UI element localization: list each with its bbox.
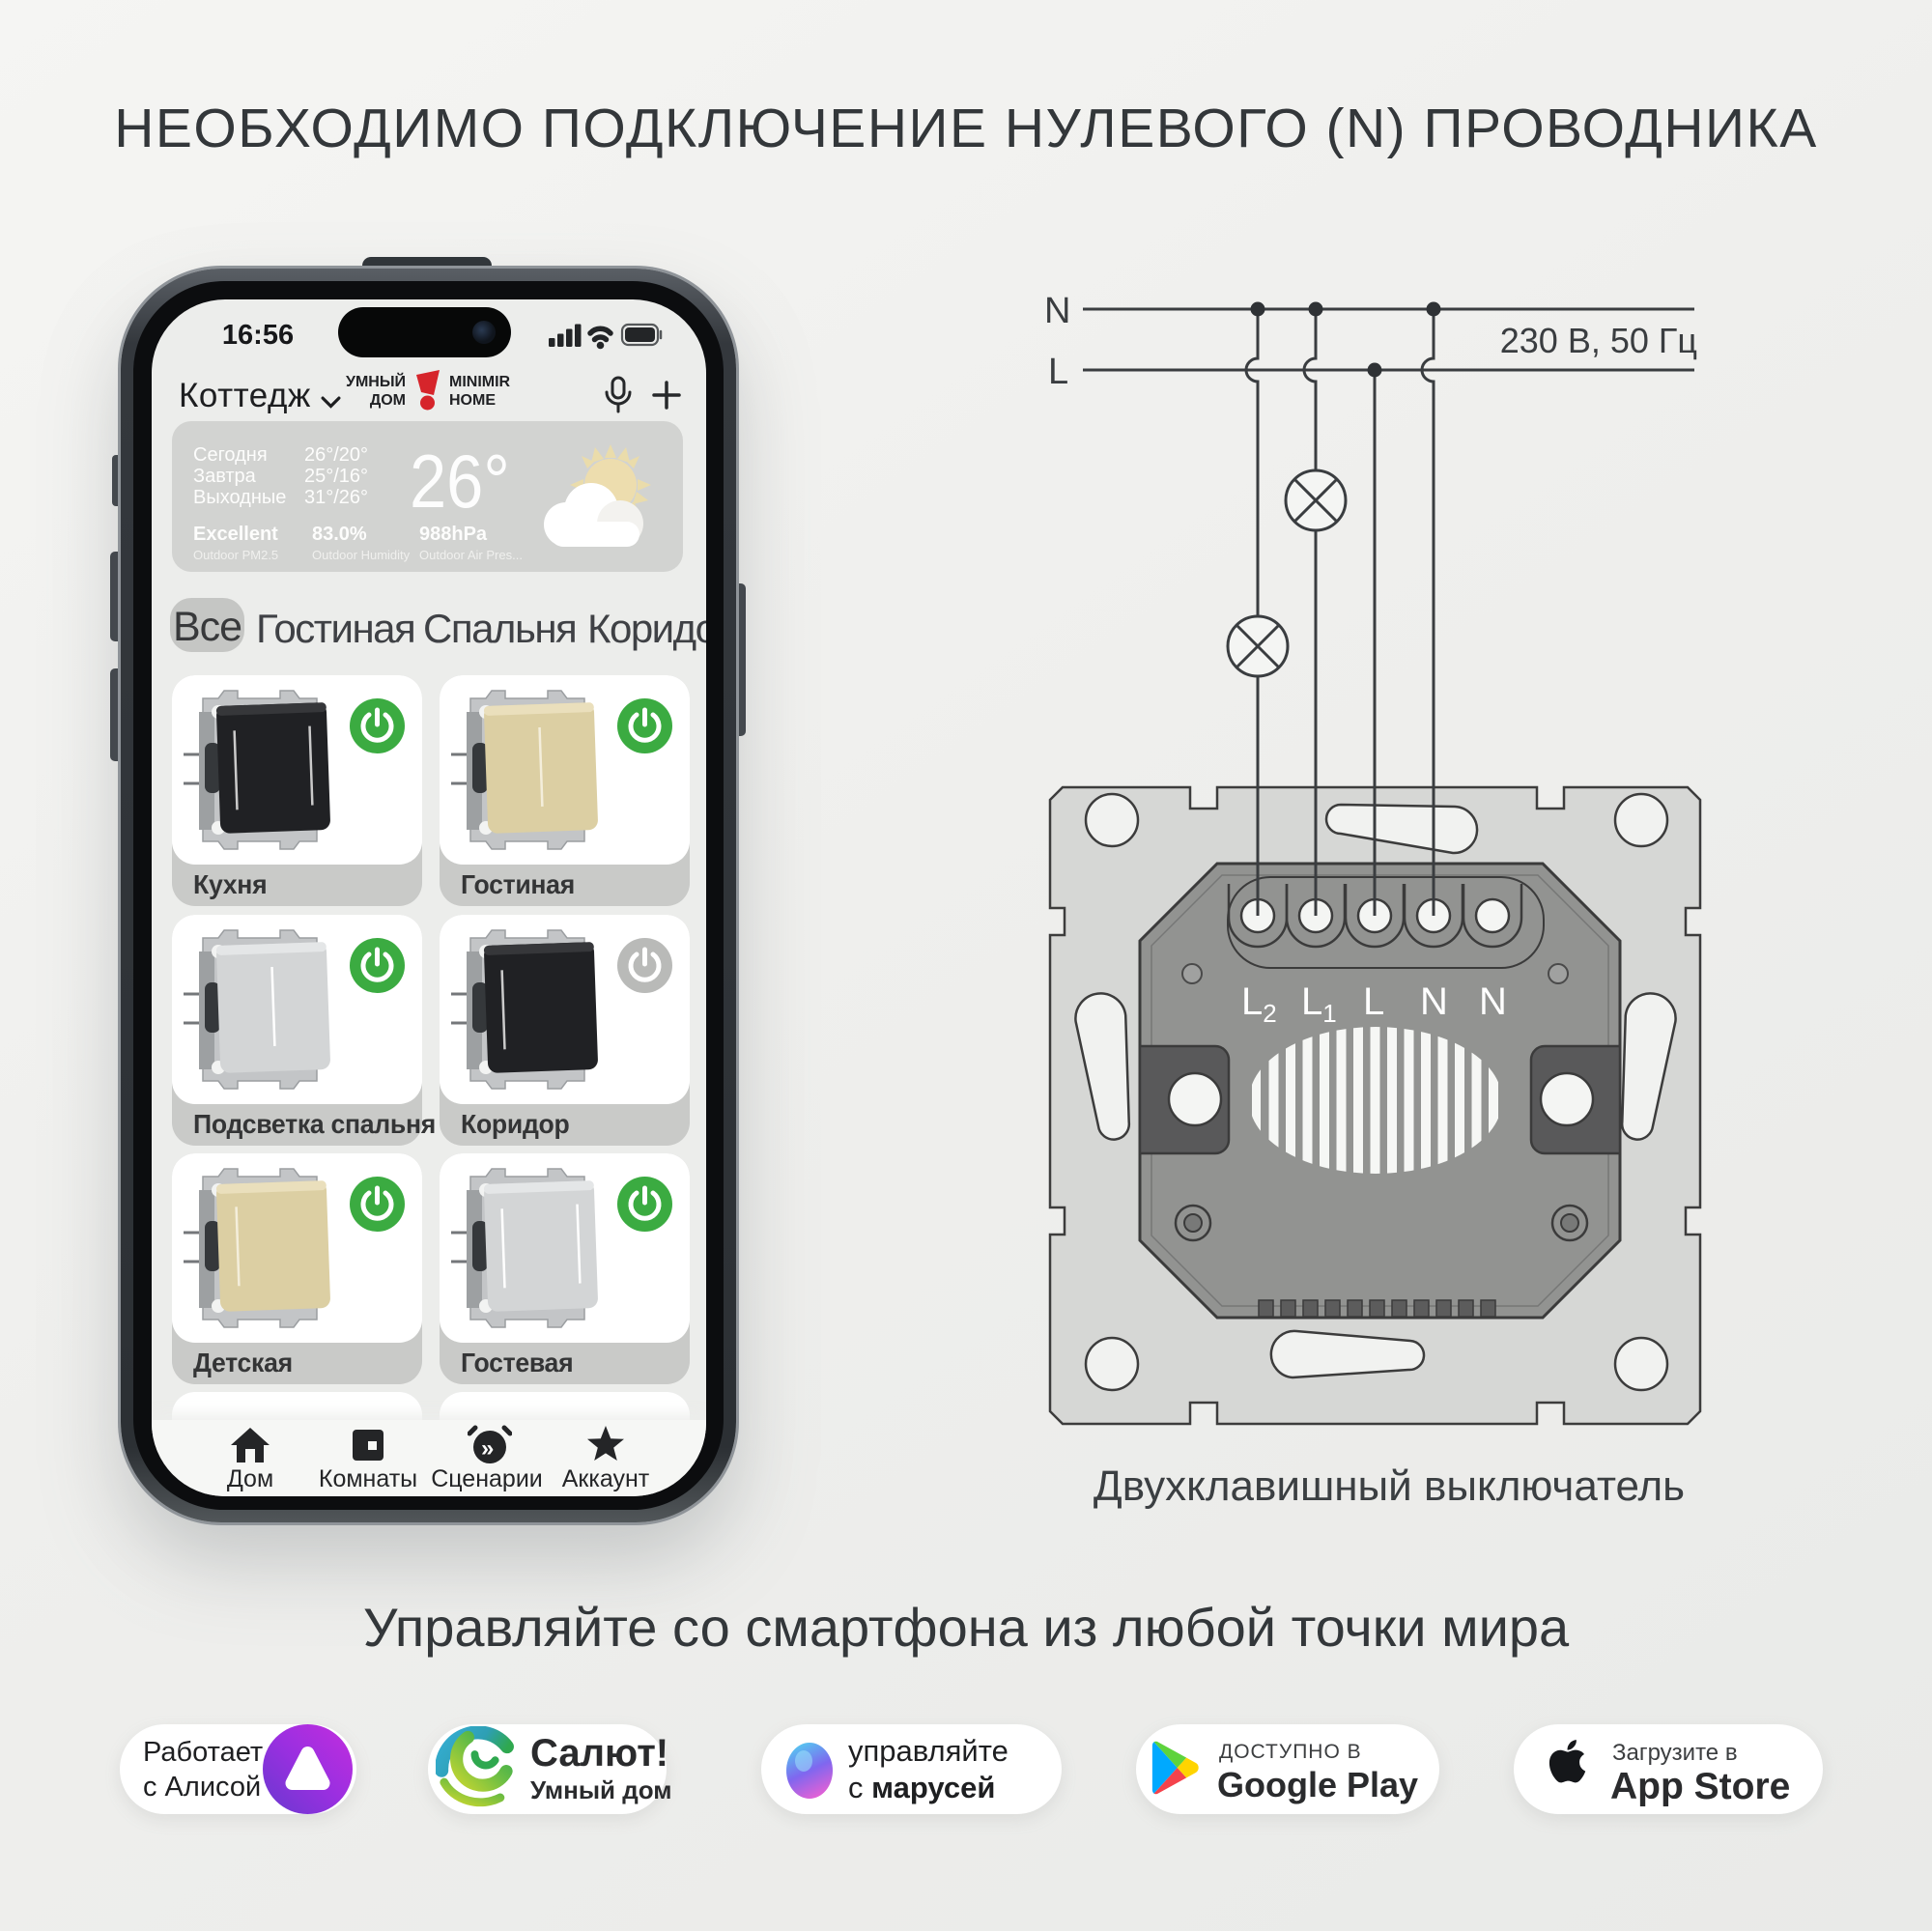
svg-text:N: N	[1044, 291, 1070, 331]
svg-text:L: L	[1048, 352, 1068, 392]
svg-text:L: L	[1363, 980, 1384, 1023]
svg-text:N: N	[1420, 980, 1448, 1023]
svg-text:230 В, 50 Гц: 230 В, 50 Гц	[1500, 321, 1697, 360]
svg-text:N: N	[1479, 980, 1507, 1023]
svg-text:»: »	[481, 1435, 494, 1462]
